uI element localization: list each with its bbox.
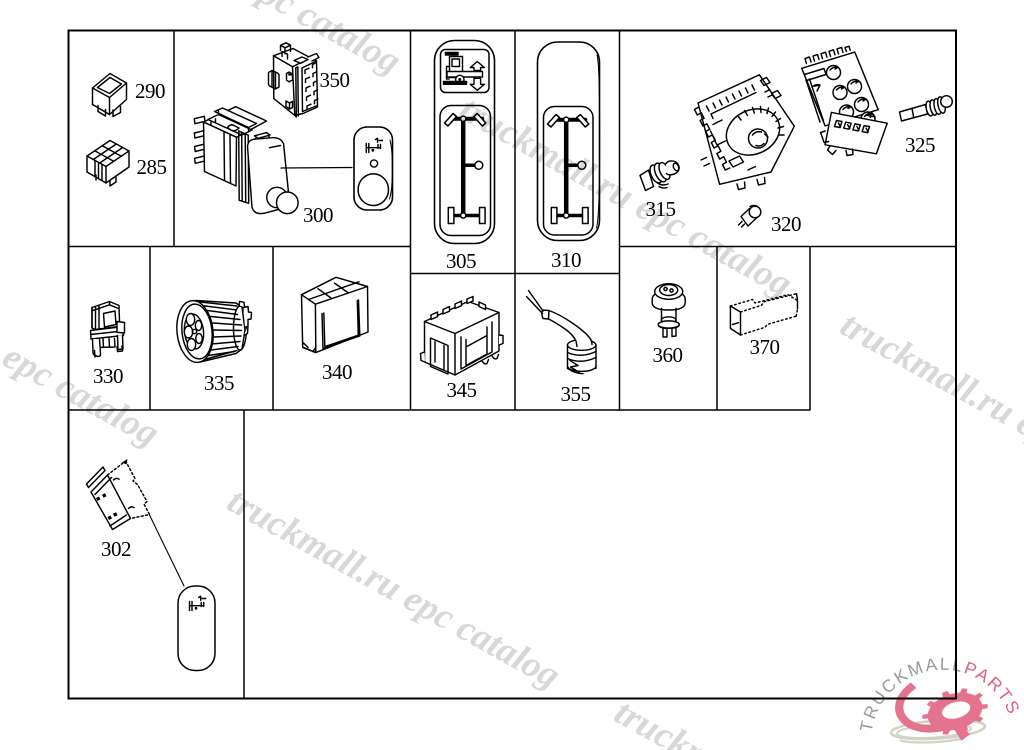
svg-text:truckmall.ru epc catalog: truckmall.ru epc catalog	[834, 304, 1024, 521]
svg-text:truckmall.ru epc catalog: truckmall.ru epc catalog	[0, 238, 166, 455]
svg-text:truckmall.ru epc catalog: truckmall.ru epc catalog	[453, 89, 799, 306]
svg-text:truckmall.ru epc catalog: truckmall.ru epc catalog	[221, 480, 567, 697]
svg-text:truckmall.ru epc catalog: truckmall.ru epc catalog	[61, 0, 407, 83]
